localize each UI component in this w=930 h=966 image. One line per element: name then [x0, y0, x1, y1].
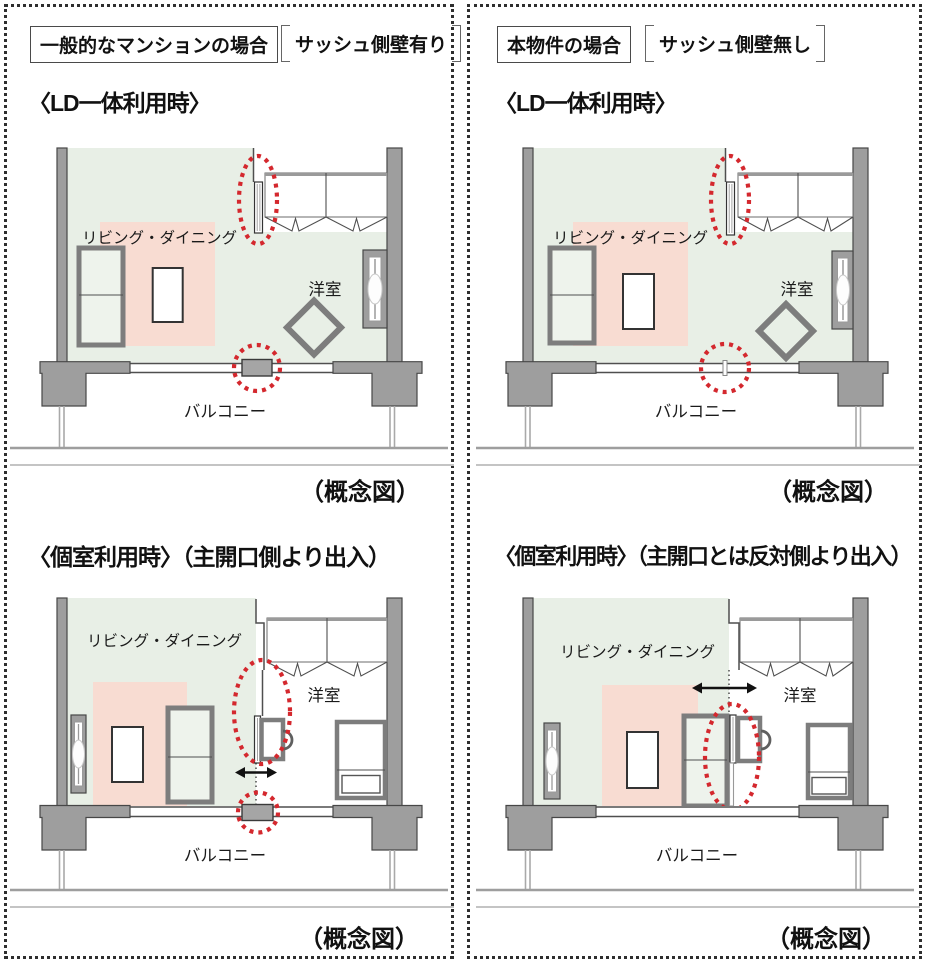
balcony-sash — [130, 363, 333, 373]
tag-sash-wall-absent: サッシュ側壁無し — [645, 25, 825, 62]
title-private-room-right: 〈個室利用時〉（主開口とは反対側より出入） — [494, 539, 911, 571]
hinged-door-open — [730, 715, 771, 806]
living-dining-label: リビング・ダイニング — [87, 632, 242, 650]
right-wall — [853, 598, 868, 806]
balcony-sash — [130, 806, 333, 817]
right-wall — [387, 598, 402, 806]
bed — [337, 722, 385, 798]
wall-sliding-door — [544, 723, 560, 799]
living-dining-label: リビング・ダイニング — [82, 229, 237, 247]
living-dining-label: リビング・ダイニング — [560, 643, 715, 661]
table — [623, 274, 654, 329]
balcony-label: バルコニー — [184, 847, 266, 865]
table — [627, 732, 658, 788]
plan-typical-ld-combined: リビング・ダイニング 洋室 バルコニー （概念図） — [8, 143, 458, 505]
closet — [740, 618, 853, 676]
left-wall — [523, 148, 533, 363]
wall-sliding-door — [832, 251, 853, 329]
tag-sash-wall-present: サッシュ側壁有り — [281, 25, 461, 62]
title-private-room-left: 〈個室利用時〉（主開口側より出入） — [28, 538, 390, 572]
balcony-sash — [596, 806, 799, 817]
left-wall — [57, 598, 67, 806]
western-room-label: 洋室 — [781, 280, 814, 299]
western-room-label: 洋室 — [784, 686, 817, 705]
sofa — [684, 716, 727, 806]
plan-typical-private-room: リビング・ダイニング — [8, 588, 458, 960]
conceptual-caption: （概念図） — [768, 478, 888, 506]
table — [112, 727, 143, 782]
balcony-label: バルコニー — [656, 847, 738, 865]
wall-sliding-door — [71, 715, 86, 793]
plan-property-ld-combined: リビング・ダイニング 洋室 バルコニー （概念図） — [474, 143, 924, 505]
western-room-label: 洋室 — [309, 280, 342, 299]
conceptual-caption: （概念図） — [299, 925, 419, 953]
sofa — [79, 248, 123, 345]
table — [153, 268, 183, 322]
balcony-sash — [596, 361, 799, 376]
bed — [808, 725, 850, 798]
plan-property-private-room: リビング・ダイニング 洋室 — [474, 588, 924, 960]
left-wall — [523, 598, 533, 806]
closet — [267, 618, 387, 676]
conceptual-caption: （概念図） — [766, 925, 886, 953]
tag-this-property: 本物件の場合 — [497, 26, 631, 63]
partition-wall — [256, 599, 264, 716]
wall-sliding-door — [363, 250, 387, 328]
sash-side-wall — [242, 360, 272, 377]
right-wall — [387, 148, 402, 362]
sash-mullion — [723, 361, 727, 376]
title-ld-combined-left: 〈LD一体利用時〉 — [28, 84, 211, 118]
tag-typical-mansion: 一般的なマンションの場合 — [30, 26, 278, 63]
balcony-label: バルコニー — [655, 403, 737, 421]
sash-side-wall — [242, 805, 273, 821]
western-room-label: 洋室 — [308, 686, 341, 705]
title-ld-combined-right: 〈LD一体利用時〉 — [494, 84, 677, 118]
sofa — [168, 708, 212, 802]
right-wall — [853, 148, 868, 362]
sofa — [550, 248, 594, 343]
conceptual-caption: （概念図） — [300, 478, 420, 506]
partition-wall — [729, 599, 739, 670]
living-dining-label: リビング・ダイニング — [553, 229, 708, 247]
balcony-label: バルコニー — [184, 403, 266, 421]
left-wall — [57, 148, 67, 363]
thin-partition-below-door — [730, 763, 734, 806]
